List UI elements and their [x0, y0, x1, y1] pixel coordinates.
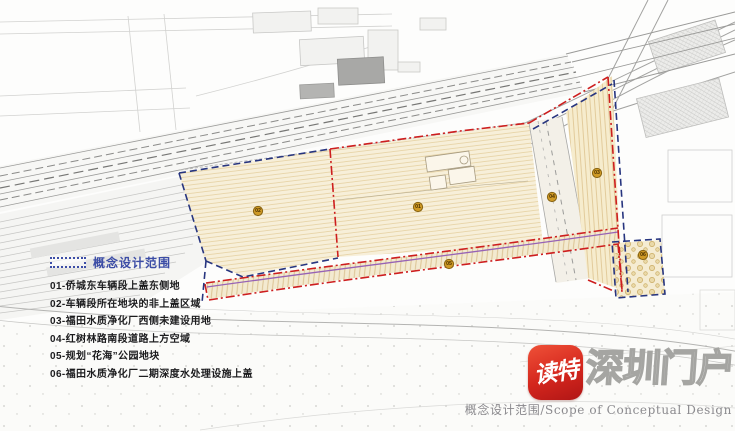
legend-title-row: 概念设计范围: [50, 254, 300, 271]
site-marker-06: 06: [638, 250, 647, 259]
dute-app-name: 读特: [532, 358, 579, 387]
site-marker-label: 03: [594, 170, 600, 176]
dute-app-logo: 读特: [528, 345, 583, 400]
scope-boundary-swatch-icon: [50, 257, 86, 268]
legend-item-06: 06-福田水质净化厂二期深度水处理设施上盖: [50, 366, 300, 384]
site-marker-label: 01: [415, 204, 421, 210]
site-marker-05: 05: [444, 259, 453, 268]
site-marker-02: 02: [253, 206, 262, 215]
site-marker-03: 03: [592, 168, 601, 177]
legend-item-01: 01-侨城东车辆段上盖东侧地: [50, 278, 300, 296]
site-marker-01: 01: [413, 202, 422, 211]
site-marker-04: 04: [547, 192, 556, 201]
legend-item-04: 04-红树林路南段道路上方空域: [50, 331, 300, 349]
scope-caption: 概念设计范围/Scope of Conceptual Design: [465, 401, 732, 418]
site-marker-label: 06: [640, 252, 646, 258]
legend: 概念设计范围 01-侨城东车辆段上盖东侧地 02-车辆段所在地块的非上盖区域 0…: [50, 254, 300, 384]
site-plan-image: 01 02 03 04 05 06 概念设计范围 01-侨城东车辆段上盖东侧地: [0, 0, 735, 431]
site-marker-label: 04: [549, 194, 555, 200]
legend-item-03: 03-福田水质净化厂西侧未建设用地: [50, 313, 300, 331]
shenzhen-portal-watermark: 深圳门户: [585, 350, 735, 388]
legend-item-05: 05-规划“花海”公园地块: [50, 348, 300, 366]
legend-item-02: 02-车辆段所在地块的非上盖区域: [50, 296, 300, 314]
legend-title: 概念设计范围: [93, 254, 171, 271]
site-marker-label: 02: [255, 208, 261, 214]
site-marker-label: 05: [446, 261, 452, 267]
